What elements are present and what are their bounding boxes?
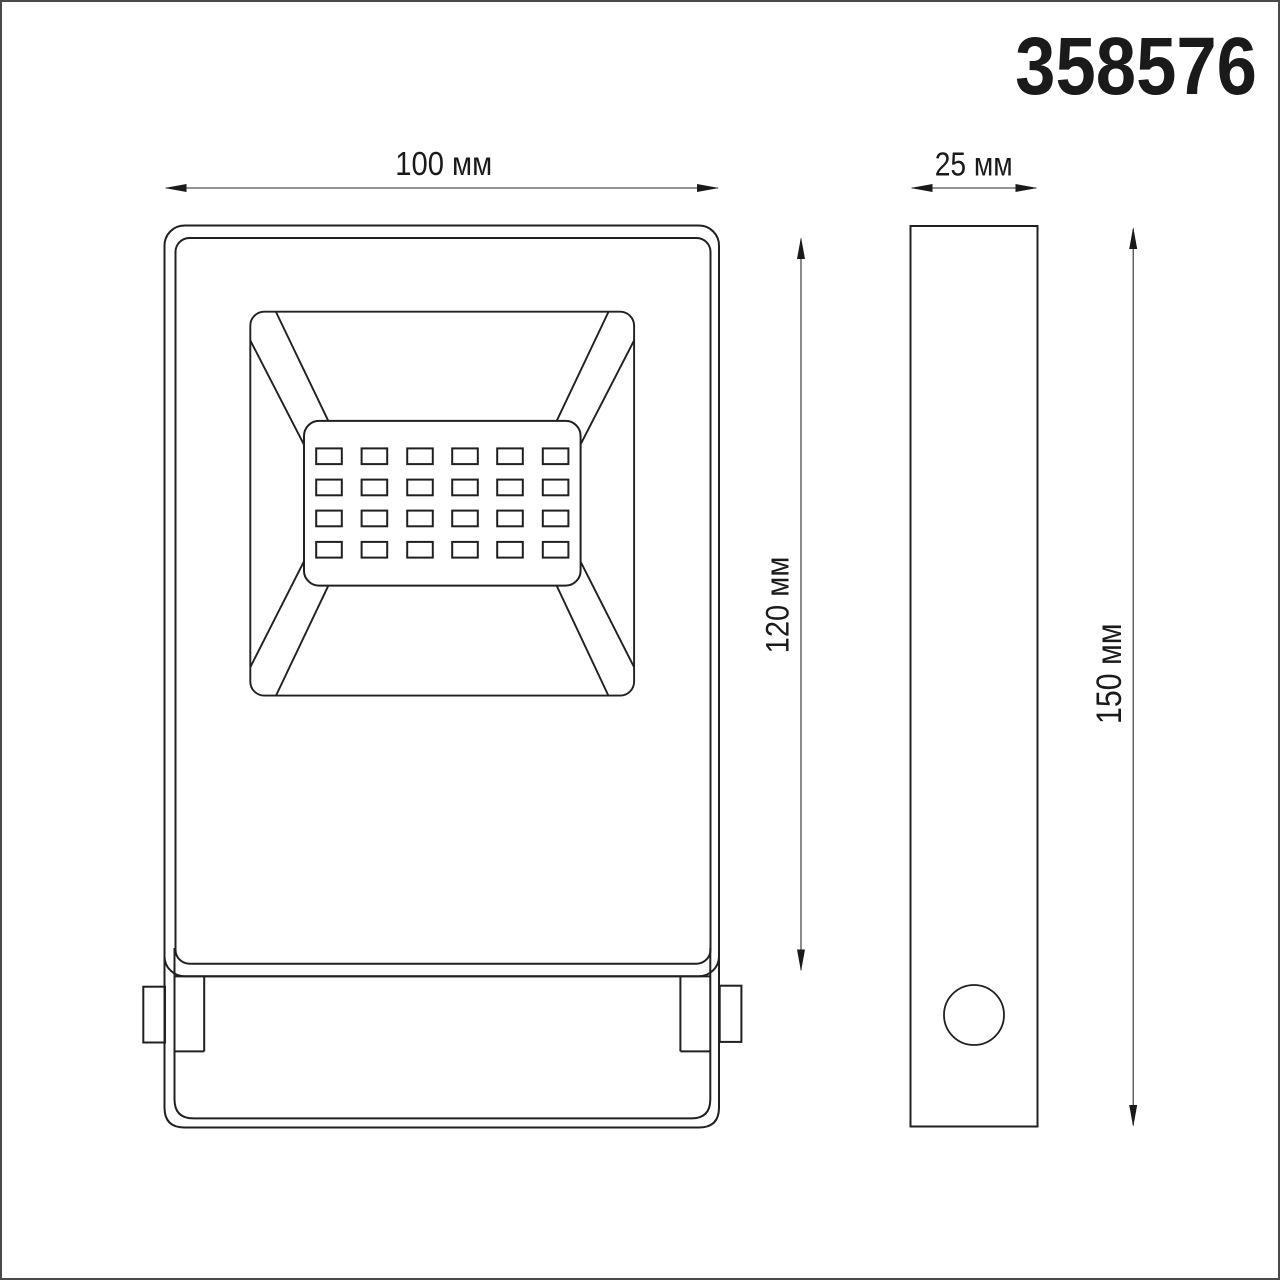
svg-text:150 мм: 150 мм — [1089, 623, 1129, 724]
svg-text:358576: 358576 — [1015, 21, 1257, 112]
svg-text:100 мм: 100 мм — [395, 145, 492, 182]
svg-text:120 мм: 120 мм — [760, 557, 796, 654]
svg-text:25 мм: 25 мм — [935, 145, 1013, 183]
